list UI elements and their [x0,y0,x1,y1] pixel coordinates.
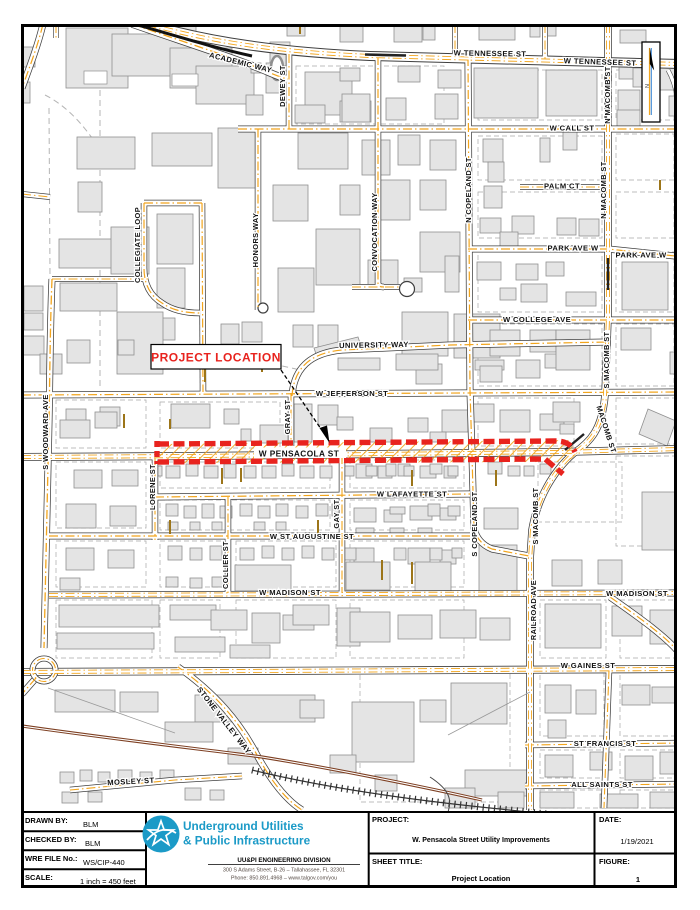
svg-text:BLM: BLM [83,820,98,829]
svg-text:WS/CIP-440: WS/CIP-440 [83,858,125,867]
svg-text:DATE:: DATE: [599,815,621,824]
svg-text:ST FRANCIS ST: ST FRANCIS ST [574,739,637,748]
svg-text:W PENSACOLA ST: W PENSACOLA ST [259,449,339,459]
svg-text:W MADISON ST: W MADISON ST [606,589,668,598]
svg-text:Project Location: Project Location [452,874,511,883]
svg-text:WRE FILE No.:: WRE FILE No.: [25,854,78,863]
svg-text:W MADISON ST: W MADISON ST [259,588,321,597]
svg-text:Phone: 850.891.4968 – ww: Phone: 850.891.4968 – www.talgov.com/you [231,876,337,882]
svg-text:1/19/2021: 1/19/2021 [620,837,653,846]
svg-text:COLLIER ST: COLLIER ST [221,541,230,589]
svg-text:1 inch = 450 feet: 1 inch = 450 feet [80,877,137,886]
svg-text:UNIVERSITY WAY: UNIVERSITY WAY [339,340,409,350]
svg-text:FIGURE:: FIGURE: [599,857,630,866]
svg-text:N MACOMB ST: N MACOMB ST [599,161,608,218]
svg-text:N COPELAND ST: N COPELAND ST [464,157,473,223]
svg-text:GRAY ST: GRAY ST [283,399,292,434]
svg-text:PARK AVE W: PARK AVE W [615,251,667,260]
svg-text:SHEET TITLE:: SHEET TITLE: [372,857,422,866]
svg-text:HONORS WAY: HONORS WAY [251,213,260,268]
svg-text:N: N [645,84,651,88]
svg-text:W TENNESSEE ST: W TENNESSEE ST [454,48,527,58]
svg-text:SCALE:: SCALE: [25,873,53,882]
svg-text:W LAFAYETTE ST: W LAFAYETTE ST [377,490,447,499]
svg-text:DRAWN BY:: DRAWN BY: [25,816,68,825]
svg-text:W ST AUGUSTINE ST: W ST AUGUSTINE ST [270,532,354,541]
svg-text:W. Pensacola Street Utility Im: W. Pensacola Street Utility Improvements [412,837,550,844]
svg-text:GAY ST: GAY ST [332,499,341,528]
svg-text:S WOODWARD AVE: S WOODWARD AVE [41,394,50,469]
svg-text:300 S Adams Street, B-26 – Ta: 300 S Adams Street, B-26 – Tallahassee, … [223,868,345,874]
svg-text:N MACOMB ST: N MACOMB ST [603,66,612,123]
svg-text:W CALL ST: W CALL ST [550,124,595,133]
svg-text:COLLEGIATE LOOP: COLLEGIATE LOOP [133,207,142,283]
svg-text:S COPELAND ST: S COPELAND ST [470,491,479,556]
svg-text:CONVOCATION WAY: CONVOCATION WAY [370,192,379,271]
svg-text:PROJECT LOCATION: PROJECT LOCATION [151,351,281,365]
svg-text:W GAINES ST: W GAINES ST [561,661,616,670]
svg-text:W JEFFERSON ST: W JEFFERSON ST [316,389,388,398]
svg-text:DEWEY ST: DEWEY ST [278,65,287,107]
svg-text:UU&PI ENGINEERING DIVISION: UU&PI ENGINEERING DIVISION [237,857,331,864]
svg-text:1: 1 [636,875,640,884]
svg-text:ALL SAINTS ST: ALL SAINTS ST [571,780,633,789]
svg-text:BLM: BLM [85,839,100,848]
svg-text:CHECKED BY:: CHECKED BY: [25,835,77,844]
svg-text:S MACOMB ST: S MACOMB ST [531,487,540,544]
svg-text:& Public Infrastructure: & Public Infrastructure [183,834,311,848]
svg-text:RAILROAD AVE: RAILROAD AVE [529,580,538,640]
svg-text:S MACOMB ST: S MACOMB ST [602,331,611,388]
svg-text:PARK AVE W: PARK AVE W [547,244,599,253]
svg-text:LORENE ST: LORENE ST [148,464,157,510]
svg-text:PROJECT:: PROJECT: [372,815,409,824]
svg-text:PALM CT: PALM CT [544,182,580,191]
svg-text:W COLLEGE AVE: W COLLEGE AVE [503,315,571,324]
svg-text:Underground Utilities: Underground Utilities [183,819,304,833]
